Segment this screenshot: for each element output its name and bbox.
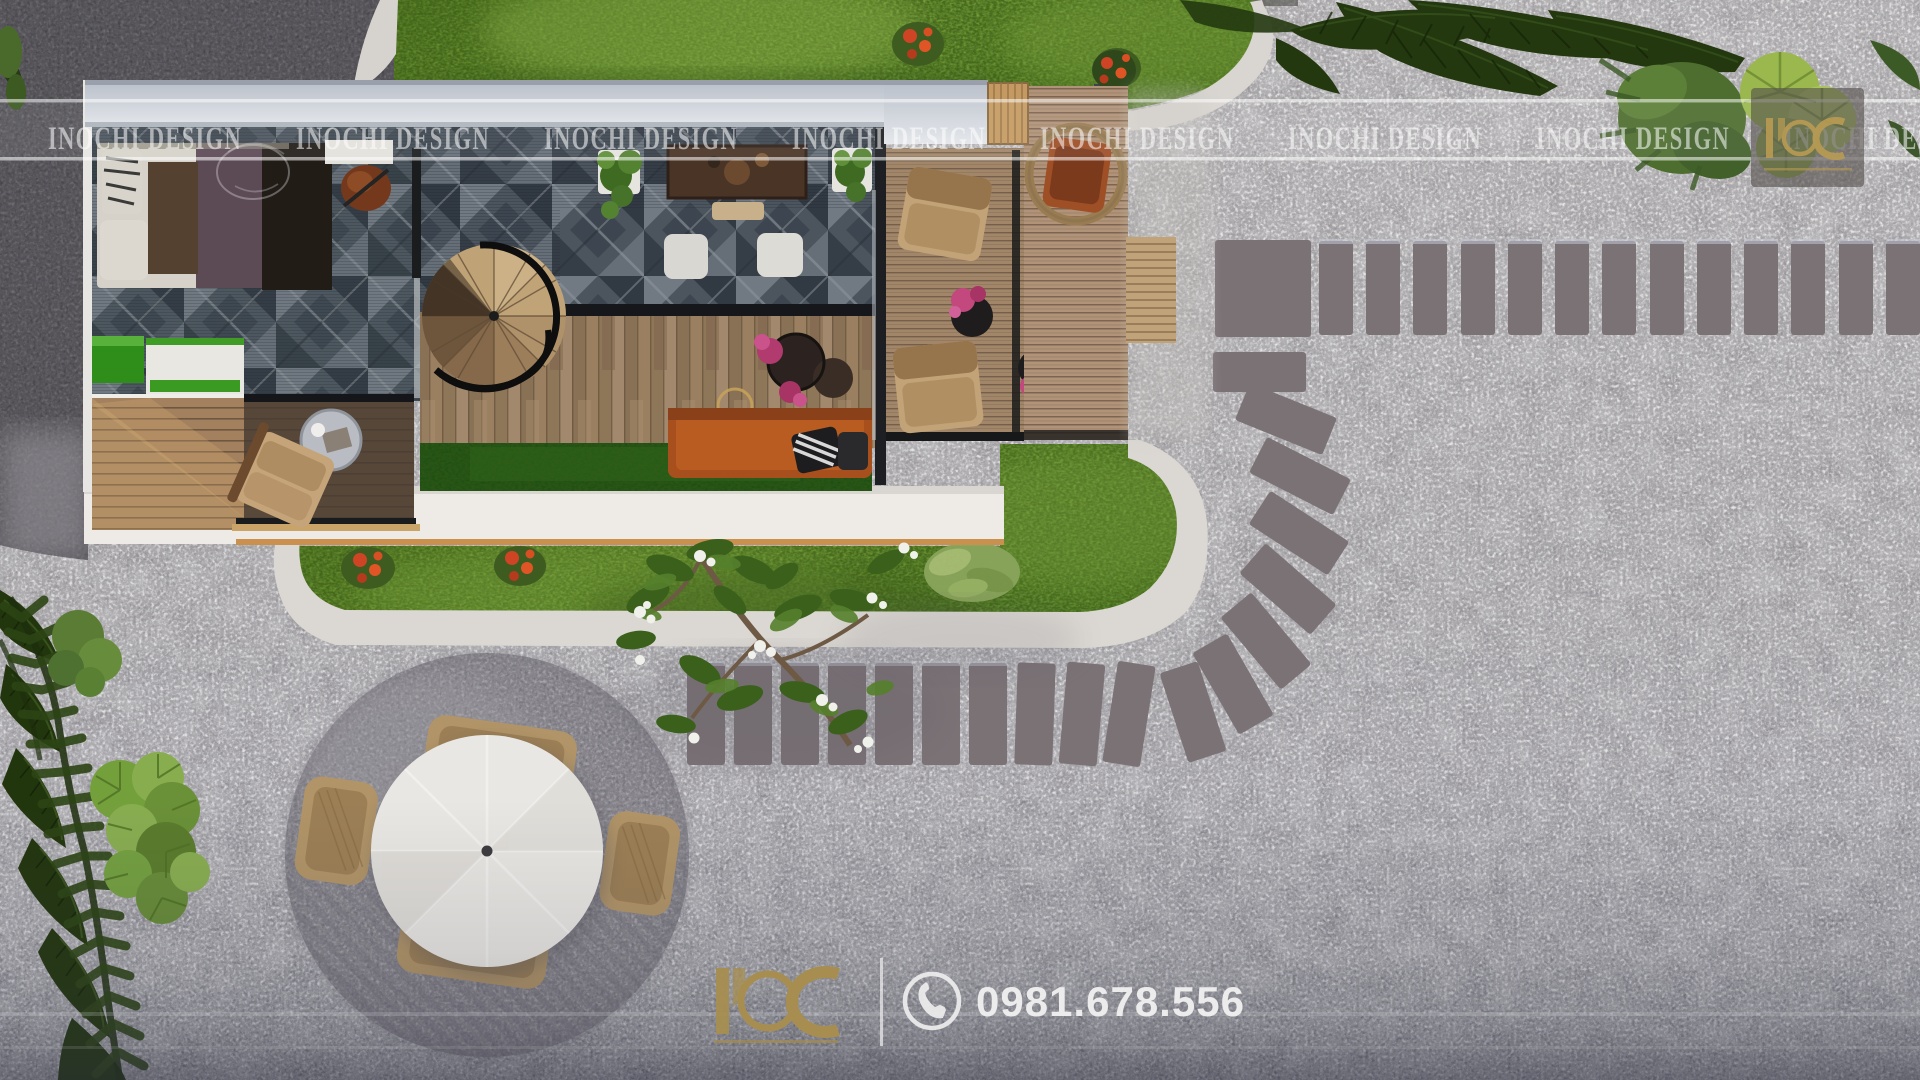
svg-text:INOCHI DESIGN: INOCHI DESIGN: [1288, 121, 1482, 157]
svg-text:INOCHI DESIGN: INOCHI DESIGN: [544, 121, 738, 157]
svg-text:INOCHI DESIGN: INOCHI DESIGN: [1536, 121, 1730, 157]
svg-text:0981.678.556: 0981.678.556: [976, 978, 1245, 1025]
svg-text:INOCHI DESIGN: INOCHI DESIGN: [296, 121, 490, 157]
svg-text:INOCHI DESIGN: INOCHI DESIGN: [48, 121, 242, 157]
svg-text:INOCHI DESIGN: INOCHI DESIGN: [792, 121, 986, 157]
svg-text:INOCHI DESIGN: INOCHI DESIGN: [1040, 121, 1234, 157]
